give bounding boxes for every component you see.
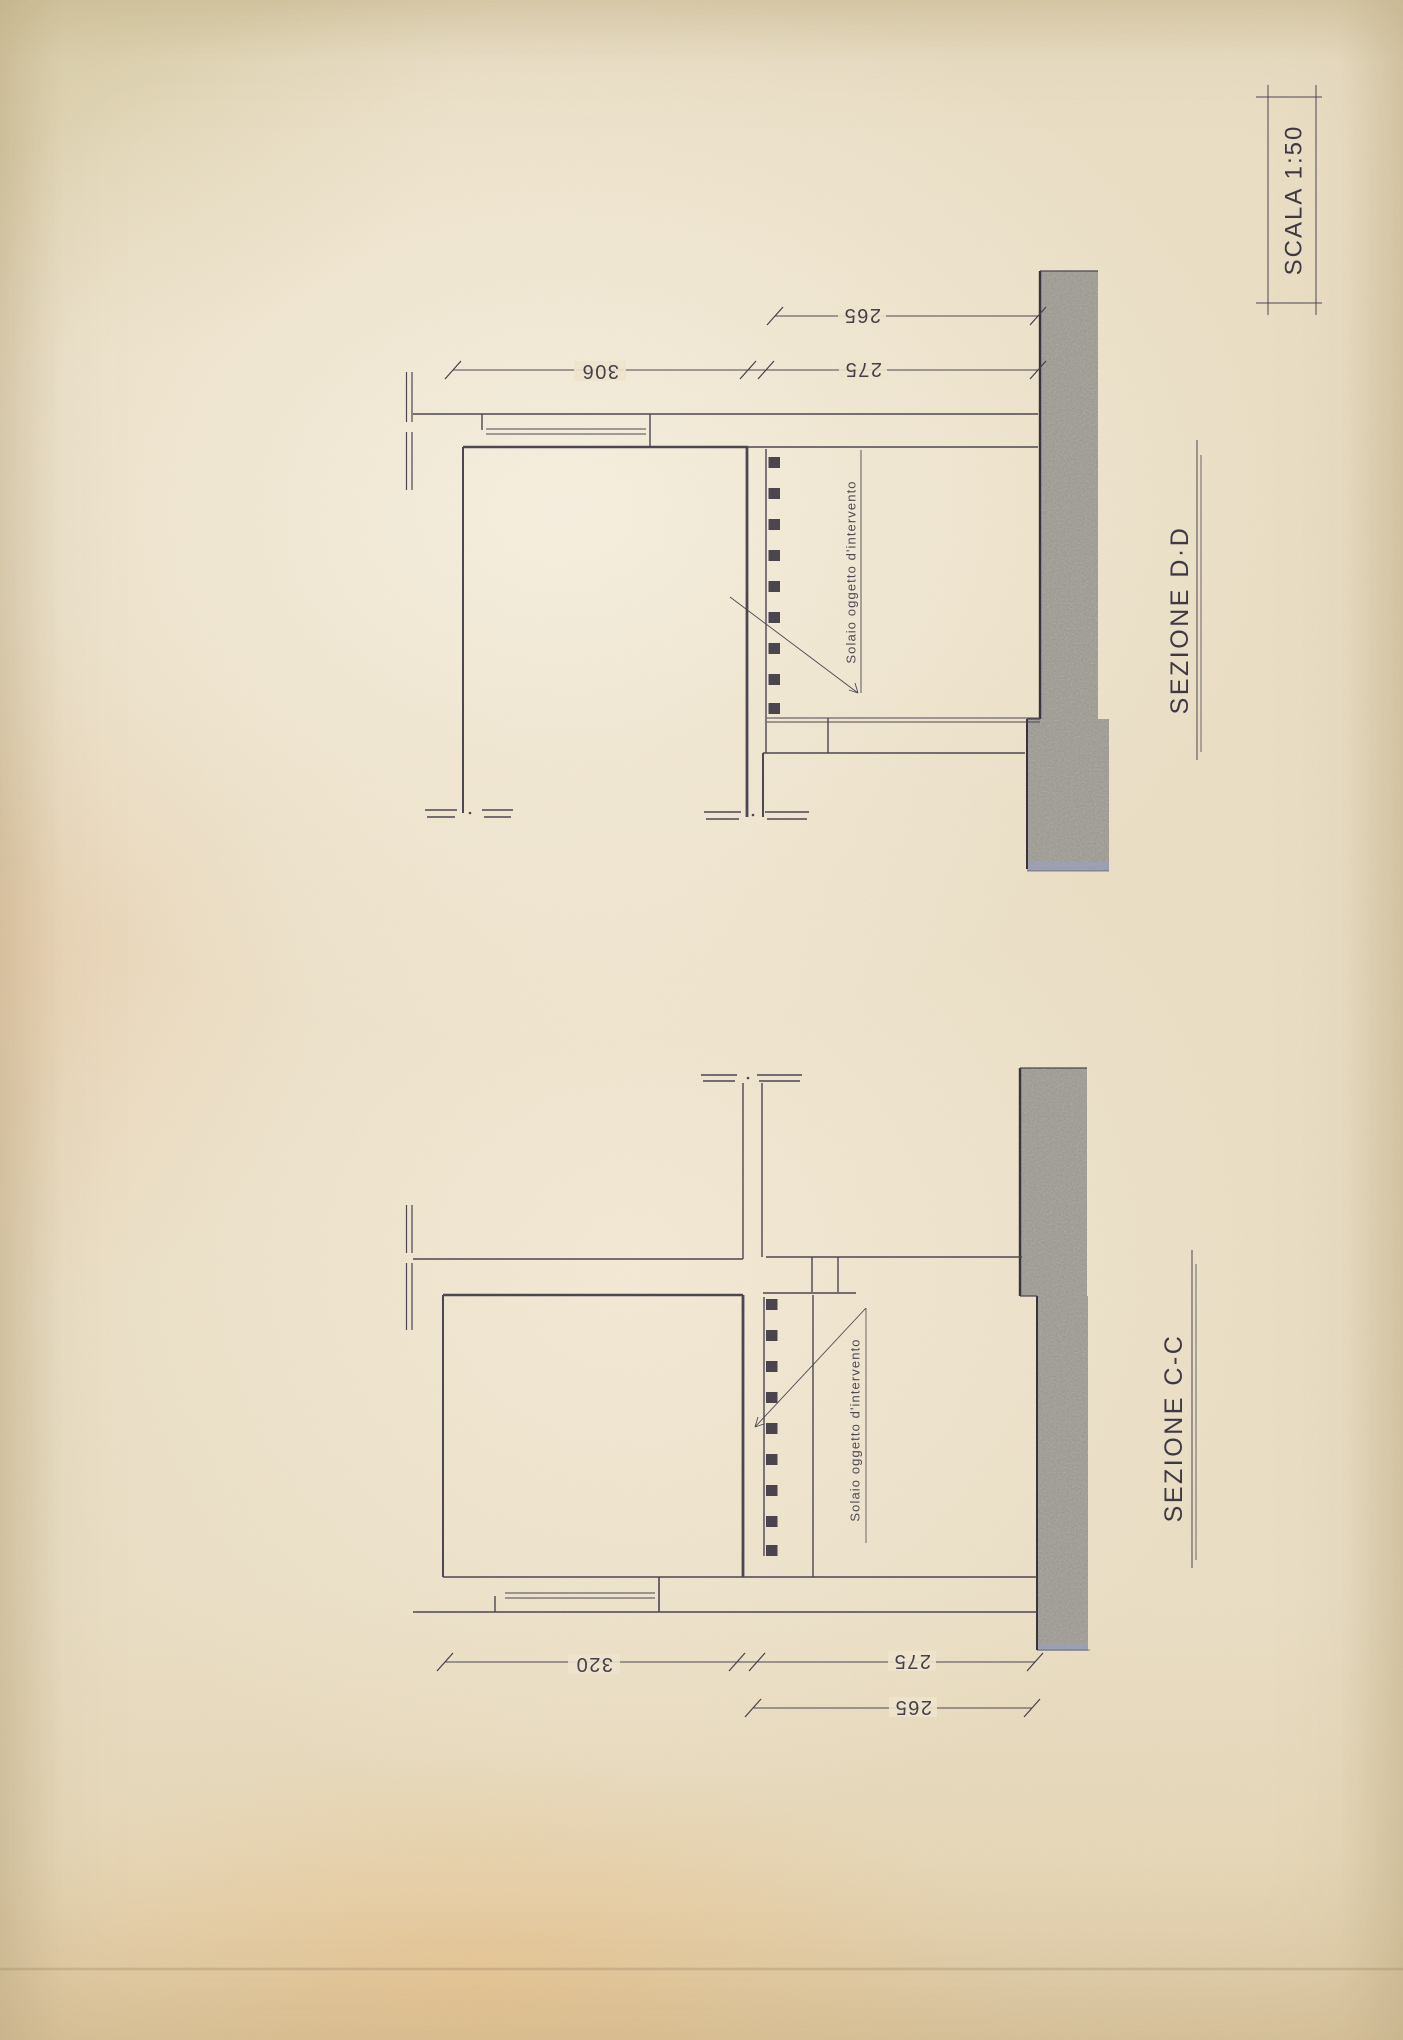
architectural-drawing: 306 275 265 Solaio oggetto d'intervento … xyxy=(0,0,1403,2040)
paper-grain-overlay xyxy=(0,0,1403,2040)
paper-fold-line xyxy=(0,1968,1403,1970)
scanned-drawing-sheet: 306 275 265 Solaio oggetto d'intervento … xyxy=(0,0,1403,2040)
